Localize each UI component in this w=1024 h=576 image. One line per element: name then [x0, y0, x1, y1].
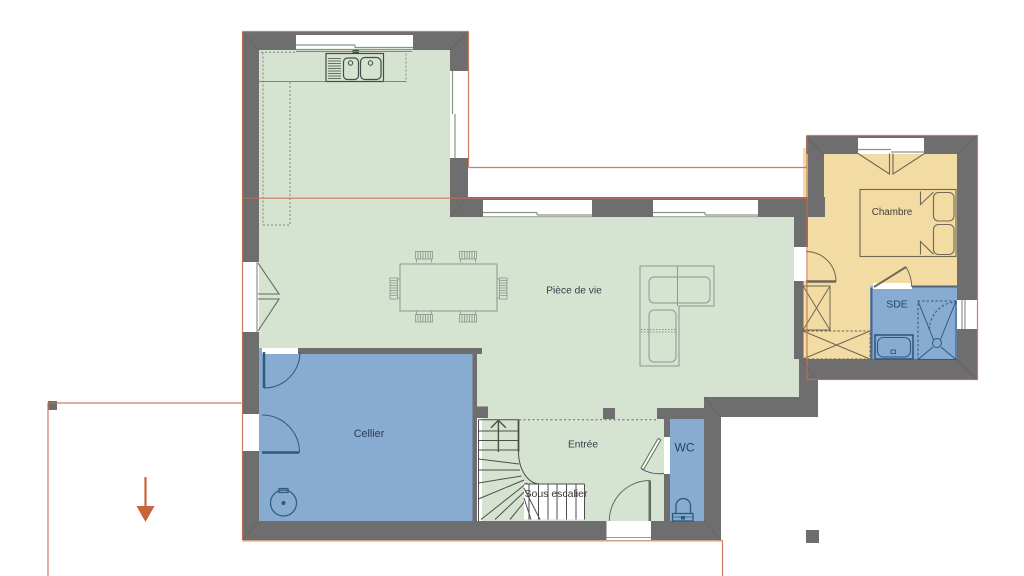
svg-text:Chambre: Chambre: [872, 207, 913, 218]
svg-text:Cellier: Cellier: [354, 428, 385, 440]
svg-text:Sous escalier: Sous escalier: [524, 488, 588, 500]
svg-text:Entrée: Entrée: [568, 440, 598, 451]
svg-text:Pièce de vie: Pièce de vie: [546, 286, 602, 297]
svg-text:WC: WC: [675, 441, 695, 455]
svg-text:SDE: SDE: [886, 299, 908, 311]
